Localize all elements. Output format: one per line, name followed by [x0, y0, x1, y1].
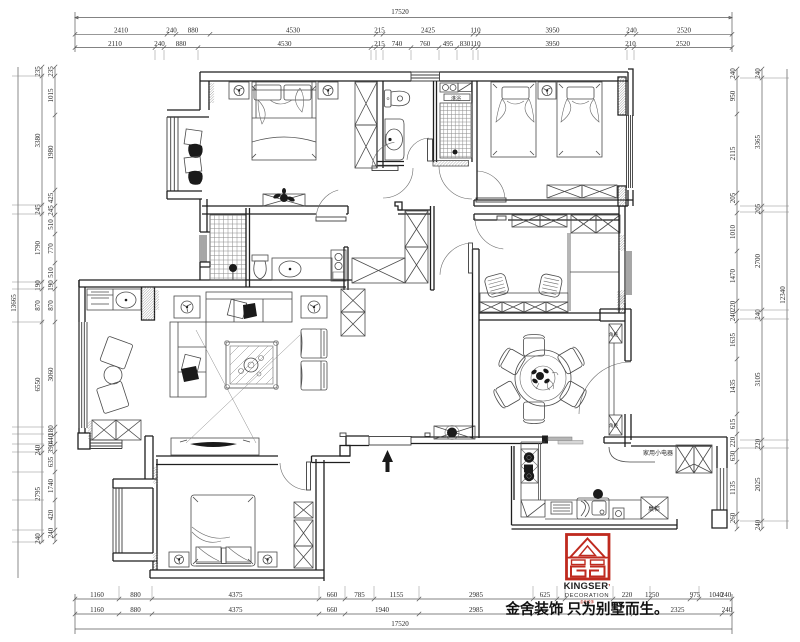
- svg-text:240: 240: [34, 444, 42, 455]
- svg-text:240: 240: [754, 68, 762, 79]
- svg-text:240: 240: [626, 27, 637, 35]
- svg-text:110: 110: [470, 27, 481, 35]
- svg-text:13665: 13665: [10, 294, 18, 312]
- svg-text:210: 210: [625, 40, 636, 48]
- svg-text:440: 440: [47, 433, 55, 444]
- svg-text:215: 215: [374, 27, 385, 35]
- svg-text:1635: 1635: [729, 333, 737, 348]
- svg-text:4375: 4375: [229, 606, 244, 614]
- svg-text:390: 390: [47, 442, 55, 453]
- svg-text:1135: 1135: [729, 481, 737, 495]
- svg-text:240: 240: [154, 40, 165, 48]
- svg-text:臬柜: 臬柜: [648, 505, 660, 513]
- svg-text:950: 950: [729, 90, 737, 101]
- svg-text:1155: 1155: [390, 591, 404, 599]
- svg-text:2110: 2110: [108, 40, 122, 48]
- svg-text:740: 740: [392, 40, 403, 48]
- svg-text:2025: 2025: [754, 477, 762, 492]
- svg-text:17520: 17520: [391, 8, 409, 16]
- svg-text:240: 240: [166, 27, 177, 35]
- svg-text:880: 880: [130, 591, 141, 599]
- svg-text:785: 785: [354, 591, 365, 599]
- svg-text:12340: 12340: [779, 286, 787, 304]
- svg-text:2325: 2325: [671, 606, 686, 614]
- svg-text:3105: 3105: [754, 372, 762, 387]
- svg-text:17520: 17520: [391, 620, 409, 628]
- svg-text:880: 880: [176, 40, 187, 48]
- svg-text:240: 240: [729, 310, 737, 321]
- svg-text:1250: 1250: [645, 591, 660, 599]
- svg-text:KINGSER’: KINGSER’: [564, 581, 611, 592]
- svg-text:425: 425: [47, 192, 55, 203]
- svg-text:1740: 1740: [47, 479, 55, 494]
- svg-text:235: 235: [47, 66, 55, 77]
- svg-text:880: 880: [188, 27, 199, 35]
- svg-text:2795: 2795: [34, 487, 42, 502]
- svg-text:110: 110: [470, 40, 481, 48]
- svg-text:家用小电器: 家用小电器: [643, 449, 673, 457]
- svg-text:510: 510: [47, 219, 55, 230]
- svg-text:2410: 2410: [114, 27, 129, 35]
- svg-text:3365: 3365: [754, 135, 762, 150]
- svg-text:630: 630: [729, 450, 737, 461]
- svg-text:2115: 2115: [729, 146, 737, 160]
- svg-text:635: 635: [47, 456, 55, 467]
- svg-text:3060: 3060: [47, 367, 55, 382]
- svg-text:1435: 1435: [729, 379, 737, 394]
- svg-text:1015: 1015: [47, 88, 55, 103]
- svg-text:510: 510: [47, 267, 55, 278]
- svg-text:660: 660: [327, 606, 338, 614]
- svg-text:240: 240: [721, 591, 732, 599]
- svg-text:4530: 4530: [278, 40, 293, 48]
- svg-text:205: 205: [754, 203, 762, 214]
- svg-text:3950: 3950: [546, 40, 561, 48]
- svg-text:1160: 1160: [90, 606, 104, 614]
- svg-text:1790: 1790: [34, 241, 42, 256]
- svg-text:3380: 3380: [34, 133, 42, 148]
- svg-text:205: 205: [729, 192, 737, 203]
- svg-text:760: 760: [420, 40, 431, 48]
- svg-text:2985: 2985: [469, 606, 484, 614]
- svg-text:2985: 2985: [469, 591, 484, 599]
- svg-text:2700: 2700: [754, 254, 762, 269]
- svg-text:2425: 2425: [421, 27, 436, 35]
- svg-text:870: 870: [47, 300, 55, 311]
- svg-text:770: 770: [47, 243, 55, 254]
- svg-text:880: 880: [130, 606, 141, 614]
- svg-text:DECORATION: DECORATION: [565, 593, 609, 599]
- svg-text:2520: 2520: [676, 40, 691, 48]
- svg-text:215: 215: [374, 40, 385, 48]
- svg-text:870: 870: [34, 300, 42, 311]
- svg-text:4375: 4375: [229, 591, 244, 599]
- svg-text:1010: 1010: [729, 225, 737, 240]
- svg-text:1940: 1940: [375, 606, 390, 614]
- svg-text:6550: 6550: [34, 377, 42, 392]
- svg-text:615: 615: [729, 418, 737, 429]
- svg-text:260: 260: [729, 512, 737, 523]
- svg-text:495: 495: [443, 40, 454, 48]
- svg-text:240: 240: [754, 309, 762, 320]
- svg-text:420: 420: [47, 509, 55, 520]
- svg-text:角柜: 角柜: [609, 422, 618, 429]
- svg-text:235: 235: [34, 66, 42, 77]
- svg-text:625: 625: [540, 591, 551, 599]
- svg-text:2520: 2520: [677, 27, 692, 35]
- svg-text:金舍装饰 只为别墅而生。: 金舍装饰 只为别墅而生。: [504, 600, 668, 618]
- svg-text:220: 220: [729, 436, 737, 447]
- svg-text:240: 240: [47, 527, 55, 538]
- svg-text:4530: 4530: [286, 27, 301, 35]
- svg-text:1980: 1980: [47, 145, 55, 160]
- svg-text:245: 245: [34, 204, 42, 215]
- svg-text:245: 245: [47, 205, 55, 216]
- svg-text:190: 190: [47, 280, 55, 291]
- svg-text:1470: 1470: [729, 269, 737, 284]
- svg-text:角柜: 角柜: [609, 331, 618, 338]
- svg-text:220: 220: [729, 300, 737, 311]
- svg-text:830: 830: [460, 40, 471, 48]
- svg-text:3950: 3950: [546, 27, 561, 35]
- svg-text:240: 240: [722, 606, 733, 614]
- svg-text:240: 240: [729, 68, 737, 79]
- svg-text:660: 660: [327, 591, 338, 599]
- svg-text:1160: 1160: [90, 591, 104, 599]
- svg-text:淋浴: 淋浴: [451, 95, 461, 102]
- svg-text:220: 220: [622, 591, 633, 599]
